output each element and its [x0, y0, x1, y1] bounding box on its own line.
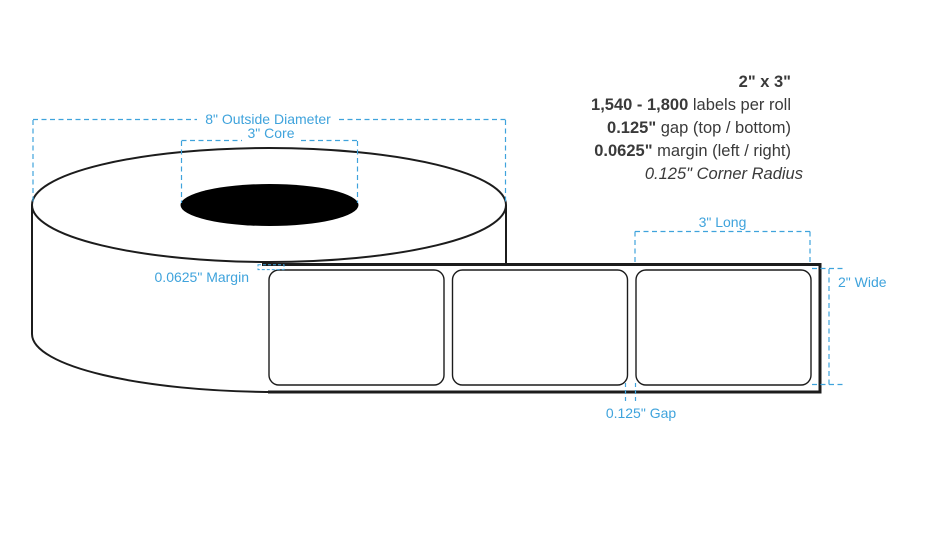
spec-block: 2" x 3" 1,540 - 1,800 labels per roll 0.…	[591, 71, 791, 186]
dim-core-label: 3" Core	[248, 125, 295, 141]
roll-bottom-arc	[32, 334, 278, 392]
dim-wide-label: 2" Wide	[838, 274, 887, 290]
spec-margin-value: 0.0625"	[594, 142, 652, 160]
spec-corner-radius: 0.125" Corner Radius	[591, 163, 803, 186]
dim-long	[635, 232, 810, 263]
label-2	[453, 270, 628, 385]
roll-diagram: 8" Outside Diameter 3" Core 0.0625" Marg…	[0, 0, 935, 546]
labels	[269, 270, 811, 385]
spec-corner-radius-value: 0.125" Corner Radius	[645, 165, 803, 183]
spec-gap: 0.125" gap (top / bottom)	[591, 117, 791, 140]
spec-gap-value: 0.125"	[607, 119, 656, 137]
spec-labels-count: 1,540 - 1,800	[591, 96, 688, 114]
dim-long-label: 3" Long	[699, 214, 747, 230]
dim-gap-label: 0.125" Gap	[606, 405, 677, 421]
spec-margin: 0.0625" margin (left / right)	[591, 140, 791, 163]
label-1	[269, 270, 444, 385]
spec-labels-per-roll: 1,540 - 1,800 labels per roll	[591, 94, 791, 117]
spec-labels-text: labels per roll	[688, 96, 791, 114]
spec-size-value: 2" x 3"	[739, 73, 791, 91]
spec-gap-text: gap (top / bottom)	[656, 119, 791, 137]
spec-size: 2" x 3"	[591, 71, 791, 94]
label-3	[636, 270, 811, 385]
dim-margin-label: 0.0625" Margin	[155, 269, 249, 285]
spec-margin-text: margin (left / right)	[653, 142, 791, 160]
roll-core	[181, 184, 359, 226]
label-roll-diagram-page: 8" Outside Diameter 3" Core 0.0625" Marg…	[0, 0, 935, 546]
